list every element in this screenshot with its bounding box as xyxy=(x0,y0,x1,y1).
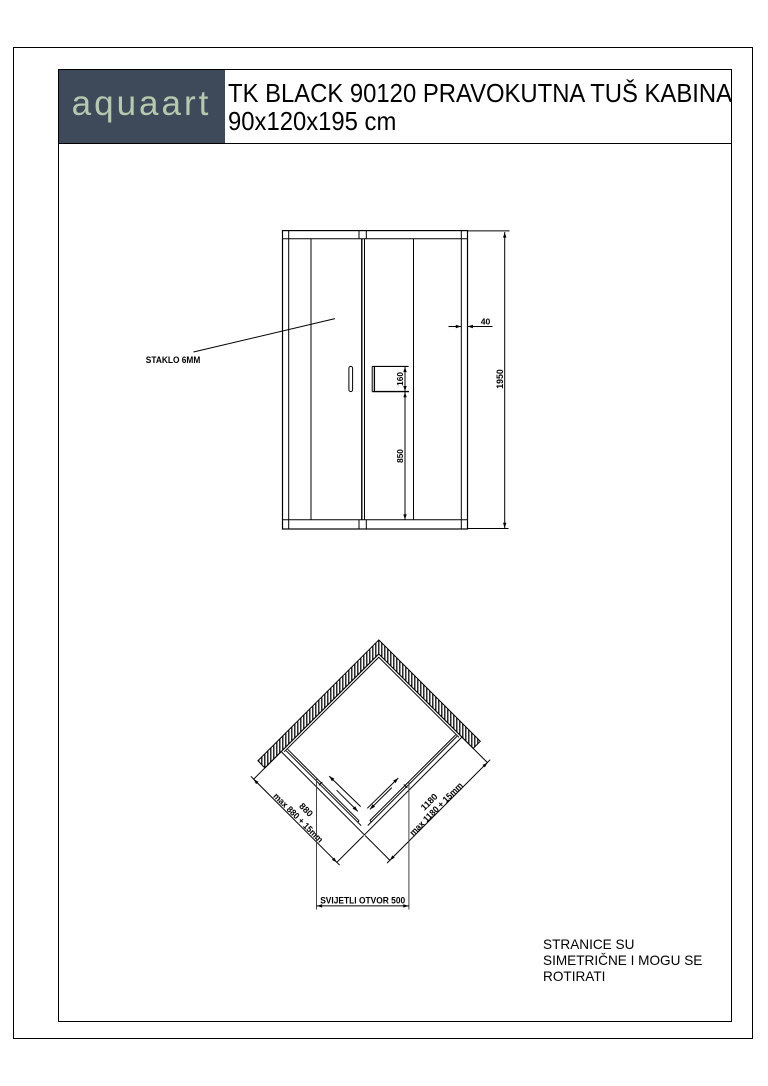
svg-text:850: 850 xyxy=(395,449,405,463)
svg-text:40: 40 xyxy=(481,317,491,327)
svg-text:SVIJETLI OTVOR 500: SVIJETLI OTVOR 500 xyxy=(320,896,405,906)
svg-text:160: 160 xyxy=(395,372,405,386)
svg-text:max 880 + 15mm: max 880 + 15mm xyxy=(271,791,325,845)
svg-text:STAKLO 6MM: STAKLO 6MM xyxy=(146,355,201,365)
svg-text:max 1180 + 15mm: max 1180 + 15mm xyxy=(408,780,465,837)
svg-text:1950: 1950 xyxy=(495,369,505,389)
